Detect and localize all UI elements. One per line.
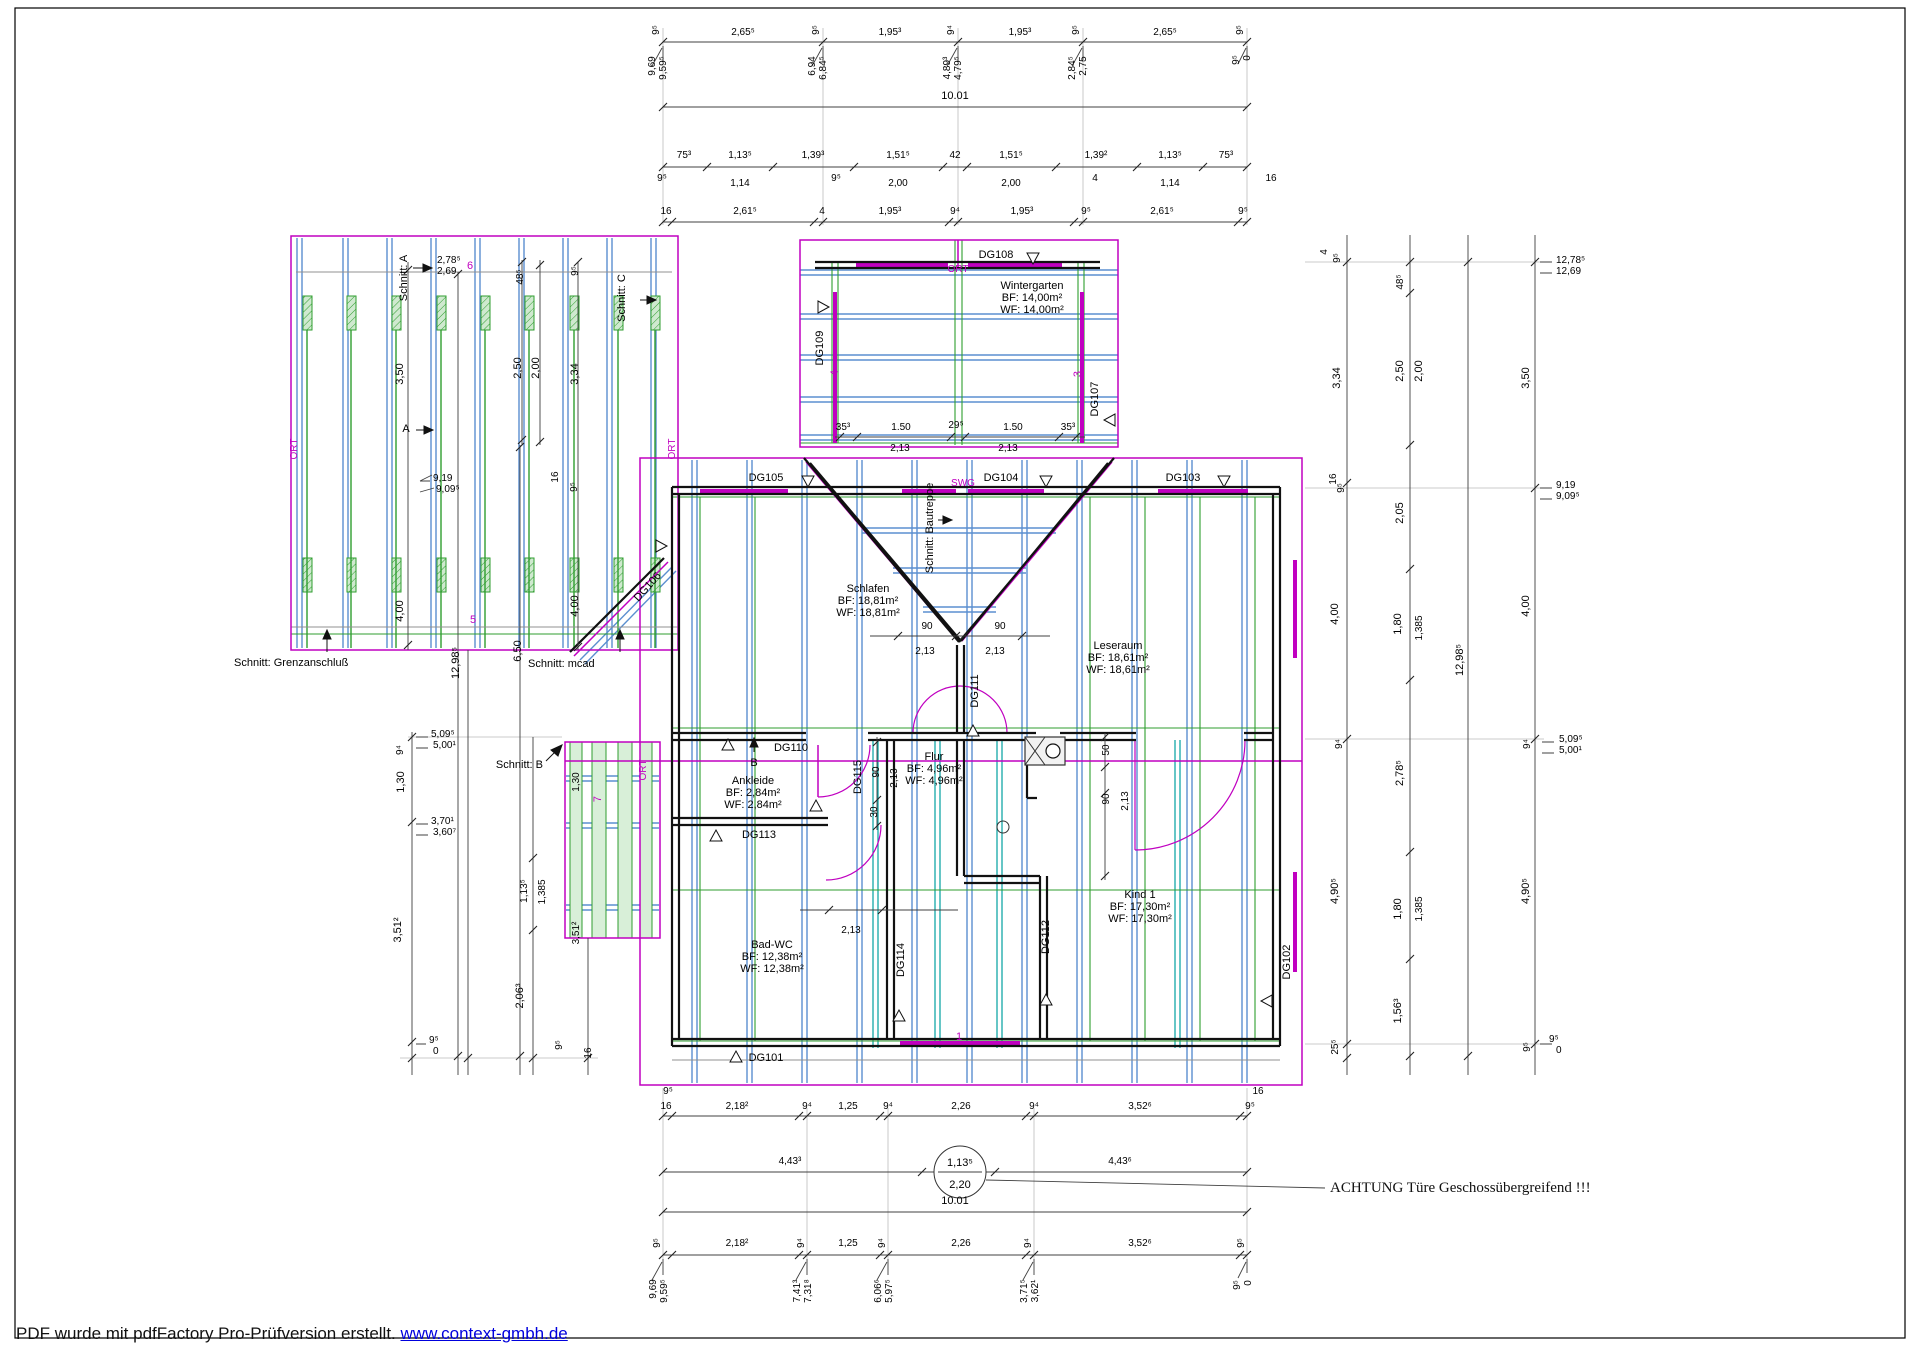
dim-label: 35³ [836, 422, 851, 433]
dim-label: 4,00 [1520, 595, 1532, 616]
dim-label: 9⁵ [554, 1040, 565, 1050]
watermark-text: PDF wurde mit pdfFactory Pro-Prüfversion… [16, 1324, 401, 1343]
dim-label: 1,14 [1160, 178, 1180, 189]
dim-label: 9⁵ [651, 25, 662, 35]
dim-label: 16 [583, 1047, 594, 1059]
dim-label: 90 [994, 621, 1006, 632]
dim-label: 7,31⁸ [803, 1279, 814, 1303]
marker-3: 3 [1072, 371, 1084, 377]
dim-label: 0 [1243, 1280, 1254, 1286]
marker-ort: ORT [667, 439, 678, 460]
room-name: Leseraum [1094, 640, 1143, 652]
dim-label: 48⁵ [1395, 274, 1406, 289]
room-bf: BF: 2,84m² [726, 787, 781, 799]
dim-label: 75³ [677, 150, 692, 161]
dim-label: 2,61⁵ [733, 206, 757, 217]
dim-label: 9⁵ [663, 1086, 673, 1097]
dim-label: 9⁵ [429, 1035, 439, 1046]
dim-label: 2,78⁵ [1394, 760, 1406, 786]
dim-label: 9,69 [648, 1279, 659, 1299]
dim-label: 1,385 [537, 879, 548, 904]
dim-label: 3,52⁶ [1128, 1101, 1152, 1112]
marker-1: 1 [956, 1031, 962, 1043]
dim-label: 2,26 [951, 1101, 971, 1112]
dim-label: 2,18² [726, 1101, 749, 1112]
dim-label: 3,60⁷ [433, 827, 456, 838]
floor-plan-page: WintergartenBF: 14,00m²WF: 14,00m²Schlaf… [0, 0, 1920, 1357]
dim-label: 1,25 [838, 1238, 858, 1249]
dim-label: 1,95³ [1009, 27, 1032, 38]
room-bf: BF: 4,96m² [907, 763, 962, 775]
dim-label: 4,43³ [779, 1156, 802, 1167]
dim-label: 1,13⁵ [519, 879, 530, 903]
dim-label: 1,80 [1392, 613, 1404, 634]
dim-label: 4,90⁵ [1329, 878, 1341, 904]
dim-label: 16 [1328, 473, 1339, 485]
dim-label: 1,25 [838, 1101, 858, 1112]
dim-label: 1,51⁵ [999, 150, 1023, 161]
dim-label: 1,39² [1085, 150, 1108, 161]
floor-plan-drawing: WintergartenBF: 14,00m²WF: 14,00m²Schlaf… [0, 0, 1920, 1357]
dim-label: 2,13 [985, 646, 1005, 657]
dim-label: 1,30 [571, 772, 582, 792]
dim-label: 1,14 [730, 178, 750, 189]
dim-label: 1,39³ [802, 150, 825, 161]
dim-label: 9⁵ [811, 25, 822, 35]
dim-label: 2,26 [951, 1238, 971, 1249]
dim-label: 0 [1556, 1045, 1562, 1056]
dim-label: 2,20 [949, 1179, 970, 1191]
door-tag-dg110: DG110 [774, 742, 808, 754]
dim-label: 6,06⁶ [873, 1279, 884, 1303]
door-tag-dg114: DG114 [895, 943, 907, 977]
marker-6: 6 [467, 260, 473, 272]
dim-label: 2,06³ [514, 983, 526, 1008]
dim-label: 9,59⁵ [659, 1279, 670, 1303]
dim-label: 9⁴ [950, 206, 960, 217]
room-wf: WF: 14,00m² [1000, 304, 1064, 316]
door-tag-dg107: DG107 [1089, 382, 1101, 417]
room-bf: BF: 18,61m² [1088, 652, 1149, 664]
dim-label: 16 [550, 471, 561, 483]
dim-label: 2,13 [889, 768, 900, 788]
dim-label: 12,98⁵ [450, 647, 462, 679]
dim-label: 1,385 [1414, 615, 1425, 640]
dim-label: 90 [1101, 793, 1112, 805]
dim-label: 4,00 [569, 595, 581, 616]
room-wf: WF: 18,81m² [836, 607, 900, 619]
dim-label: 4 [1092, 173, 1098, 184]
dim-label: 29⁵ [948, 420, 963, 431]
dim-label: 9⁴ [883, 1101, 893, 1112]
section-label: Schnitt: B [496, 759, 543, 771]
dim-label: 1,95³ [879, 27, 902, 38]
room-name: Flur [925, 751, 944, 763]
dim-label: 9⁵ [1332, 253, 1343, 263]
dim-label: 9,59⁵ [658, 56, 669, 80]
dim-label: 9⁵ [1236, 1238, 1247, 1248]
dim-label: 9,19 [433, 473, 453, 484]
room-bf: BF: 14,00m² [1002, 292, 1063, 304]
dim-label: 9,69 [647, 56, 658, 76]
dim-label: 2,00 [888, 178, 908, 189]
dim-label: 9⁵ [570, 266, 581, 276]
dim-label: 0 [1242, 55, 1253, 61]
dim-label: 4 [1319, 249, 1330, 255]
dim-label: 3,51² [571, 921, 582, 944]
room-name: Schlafen [847, 583, 890, 595]
dim-label: 9⁵ [652, 1238, 663, 1248]
room-name: Bad-WC [751, 939, 793, 951]
dim-label: 1,13⁵ [728, 150, 752, 161]
marker-7: 7 [592, 796, 604, 802]
dim-label: 2,65⁵ [731, 27, 755, 38]
dim-label: 4,00 [1329, 603, 1341, 624]
dim-label: 1,95³ [879, 206, 902, 217]
dim-label: 1.50 [1003, 422, 1023, 433]
dim-label: 6,94 [807, 56, 818, 76]
door-tag-dg115: DG115 [852, 760, 864, 794]
dim-label: 3,62¹ [1030, 1279, 1041, 1302]
room-bf: BF: 18,81m² [838, 595, 899, 607]
fixture-circle [997, 821, 1009, 833]
dim-label: 9⁴ [946, 25, 957, 35]
dim-label: 3,34 [1331, 367, 1343, 388]
dim-label: 9⁵ [1549, 1034, 1559, 1045]
dim-label: 9⁴ [877, 1238, 888, 1248]
watermark-link[interactable]: www.context-gmbh.de [401, 1324, 568, 1343]
dim-label: 3,34 [569, 363, 581, 384]
door-tag-dg104: DG104 [984, 472, 1019, 484]
dim-label: 9⁵ [1235, 25, 1246, 35]
dim-label: 2,13 [890, 443, 910, 454]
dim-label: 3,71⁵ [1019, 1279, 1030, 1303]
door-tag-dg102: DG102 [1281, 945, 1293, 980]
door-tag-dg112: DG112 [1040, 920, 1052, 954]
marker-4: 4 [829, 370, 841, 376]
dim-label: 5,09⁵ [1559, 734, 1583, 745]
dim-label: 4 [819, 206, 825, 217]
room-bf: BF: 17,30m² [1110, 901, 1171, 913]
dim-label: 2,61⁵ [1150, 206, 1174, 217]
dim-label: 9⁵ [1336, 483, 1347, 493]
dim-label: 6,50 [512, 640, 524, 661]
dim-label: 10.01 [941, 90, 969, 102]
dim-label: 9,09⁵ [436, 484, 460, 495]
dim-label: 3,51² [392, 917, 404, 942]
dim-label: 12,78⁵ [1556, 255, 1585, 266]
page-border [15, 8, 1905, 1338]
dim-label: 9⁴ [802, 1101, 812, 1112]
dim-label: 2,50 [1394, 360, 1406, 381]
dim-label: 2,00 [1413, 360, 1425, 381]
dim-label: 5,09⁵ [431, 729, 455, 740]
dim-label: 9⁴ [1029, 1101, 1039, 1112]
dim-label: 10.01 [941, 1195, 969, 1207]
dim-label: 1,80 [1392, 898, 1404, 919]
room-name: Kind 1 [1124, 889, 1155, 901]
chimney [1025, 737, 1065, 765]
marker-ort: ORT [948, 264, 969, 275]
room-wf: WF: 12,38m² [740, 963, 804, 975]
dim-label: 9⁴ [1334, 739, 1345, 749]
door-tag-dg103: DG103 [1166, 472, 1201, 484]
door-tag-dg105: DG105 [749, 472, 784, 484]
room-wf: WF: 18,61m² [1086, 664, 1150, 676]
dim-label: 9⁵ [831, 173, 841, 184]
dim-label: 9⁵ [1071, 25, 1082, 35]
dim-label: 42 [949, 150, 961, 161]
dim-label: 30 [869, 806, 880, 818]
dim-label: 4,79⁵ [953, 56, 964, 80]
dim-label: 2,50 [512, 357, 524, 378]
door-tag-dg109: DG109 [814, 331, 826, 366]
dim-label: 2,13 [841, 925, 861, 936]
room-wf: WF: 2,84m² [724, 799, 782, 811]
dim-label: 3,50 [394, 363, 406, 384]
dim-label: 35³ [1061, 422, 1076, 433]
dim-label: 9,09⁵ [1556, 491, 1580, 502]
dim-label: 2,05 [1394, 502, 1406, 523]
section-label: B [750, 757, 757, 769]
marker-5: 5 [470, 614, 476, 626]
dim-label: 9⁴ [1023, 1238, 1034, 1248]
dim-label: 5,00¹ [1559, 745, 1582, 756]
dim-label: 4,90⁵ [1520, 878, 1532, 904]
dim-label: 16 [1265, 173, 1277, 184]
dim-label: 9⁵ [1232, 1280, 1243, 1290]
dim-label: 2,69 [437, 266, 457, 277]
dim-label: 1,56³ [1392, 998, 1404, 1023]
dim-label: 75³ [1219, 150, 1234, 161]
dim-label: 12,98⁵ [1454, 644, 1466, 676]
dim-label: 90 [871, 766, 882, 778]
dim-label: 9⁵ [1245, 1101, 1255, 1112]
dim-label: 16 [660, 206, 672, 217]
dim-label: 1,13⁵ [1158, 150, 1182, 161]
room-wf: WF: 17,30m² [1108, 913, 1172, 925]
marker-ort: ORT [638, 760, 649, 781]
dim-label: 2,13 [1120, 791, 1131, 811]
dim-label: 16 [1252, 1086, 1264, 1097]
dim-label: 1.50 [891, 422, 911, 433]
dim-label: 12,69 [1556, 266, 1581, 277]
dim-label: 1,13⁵ [947, 1157, 973, 1169]
section-labels: Schnitt: ASchnitt: CSchnitt: Grenzanschl… [234, 254, 936, 771]
marker-ort: ORT [289, 439, 300, 460]
door-tag-dg113: DG113 [742, 829, 776, 841]
section-label: Schnitt: C [616, 274, 628, 322]
marker-swg: SWG [951, 478, 975, 489]
dim-label: 7,41³ [792, 1279, 803, 1302]
dim-label: 50 [1101, 744, 1112, 756]
dim-label: 3,50 [1520, 367, 1532, 388]
dim-label: 4,00 [394, 600, 406, 621]
section-label: Schnitt: A [398, 254, 410, 301]
dim-label: 9⁵ [1081, 206, 1091, 217]
dim-label: 5,00¹ [433, 740, 456, 751]
watermark: PDF wurde mit pdfFactory Pro-Prüfversion… [16, 1324, 568, 1344]
dim-label: 9,19 [1556, 480, 1576, 491]
dim-label: 5,97⁵ [884, 1279, 895, 1303]
dim-label: 25⁵ [1330, 1039, 1341, 1054]
section-label: Schnitt: Grenzanschluß [234, 657, 349, 669]
room-name: Ankleide [732, 775, 774, 787]
dim-label: 1,95³ [1011, 206, 1034, 217]
door-swing-arcs [818, 686, 1245, 880]
dim-label: 2,13 [915, 646, 935, 657]
achtung-note: ACHTUNG Türe Geschossübergreifend !!! [1330, 1180, 1591, 1196]
dim-label: 2,13 [998, 443, 1018, 454]
dim-label: 2,78⁵ [437, 255, 461, 266]
dim-label: 9⁵ [657, 173, 667, 184]
dim-label: 2,00 [1001, 178, 1021, 189]
dim-label: 4,89³ [942, 56, 953, 79]
dim-label: 9⁵ [1238, 206, 1248, 217]
dim-label: 9⁵ [1231, 55, 1242, 65]
dim-label: 6,84⁵ [818, 56, 829, 80]
dim-label: 2,75 [1078, 56, 1089, 76]
dim-label: 9⁵ [569, 482, 580, 492]
dim-label: 16 [660, 1101, 672, 1112]
dim-label: 9⁵ [1522, 1042, 1533, 1052]
dim-label: 2,18² [726, 1238, 749, 1249]
section-label: A [402, 423, 410, 435]
dim-label: 2,84⁵ [1067, 56, 1078, 80]
section-label: Schnitt: mcad [528, 658, 595, 670]
dim-label: 90 [921, 621, 933, 632]
dim-label: 3,52⁶ [1128, 1238, 1152, 1249]
dim-label: 9⁴ [796, 1238, 807, 1248]
dim-label: 1,385 [1414, 896, 1425, 921]
door-tag-dg108: DG108 [979, 249, 1014, 261]
dim-label: 1,51⁵ [886, 150, 910, 161]
section-label: Schnitt: Bautreppe [924, 483, 936, 574]
dim-label: 2,65⁵ [1153, 27, 1177, 38]
door-tag-dg111: DG111 [969, 674, 981, 707]
room-name: Wintergarten [1001, 280, 1064, 292]
dim-label: 48⁵ [515, 269, 526, 284]
dim-label: 9⁴ [395, 745, 406, 755]
dim-label: 2,00 [530, 357, 542, 378]
dim-label: 0 [433, 1046, 439, 1057]
dim-label: 3,70¹ [431, 816, 454, 827]
room-wf: WF: 4,96m² [905, 775, 963, 787]
dim-label: 1,30 [395, 771, 407, 792]
door-tag-dg101: DG101 [749, 1052, 784, 1064]
dim-label: 9⁴ [1522, 739, 1533, 749]
room-bf: BF: 12,38m² [742, 951, 803, 963]
dim-label: 4,43⁶ [1108, 1156, 1132, 1167]
